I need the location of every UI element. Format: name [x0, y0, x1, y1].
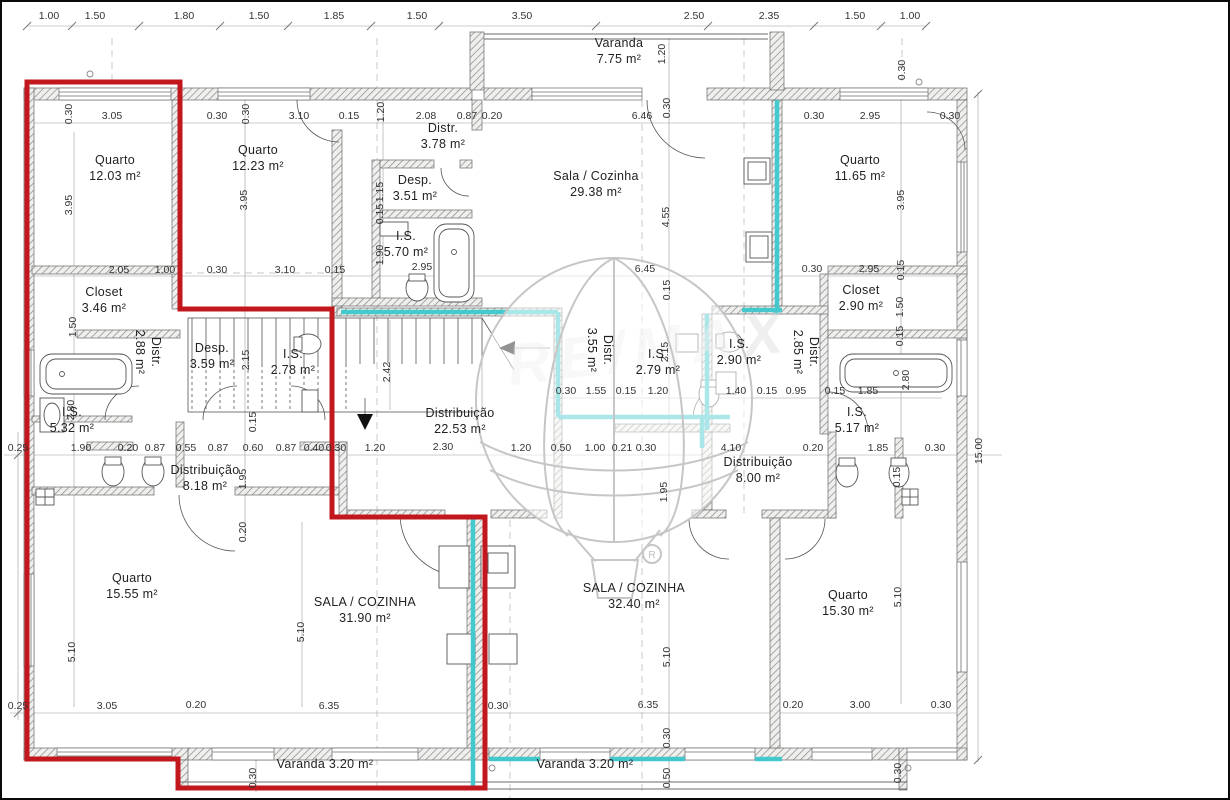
- dim-label: 0.20: [237, 522, 249, 543]
- dim-label: 0.20: [783, 699, 804, 711]
- dim-label: 1.00: [585, 442, 606, 454]
- dim-label: 0.20: [482, 110, 503, 122]
- dim-label: 6.45: [635, 263, 656, 275]
- room-label: I.S.5.17 m²: [835, 405, 879, 435]
- dim-label: 3.00: [850, 699, 871, 711]
- floor-plan-drawing: RE/MAX R 1.001.501.801.501.851.503.502.5…: [2, 2, 1230, 800]
- dim-label: 3.05: [102, 110, 123, 122]
- shower-drain: [902, 489, 918, 505]
- dim-label: 2.50: [684, 10, 705, 22]
- dim-label: 1.40: [726, 385, 747, 397]
- room-label: Distr.2.85 m²: [791, 330, 821, 374]
- dim-label: 0.15: [247, 412, 259, 433]
- dim-label: 0.30: [892, 763, 904, 784]
- dim-label: 2.15: [240, 350, 252, 371]
- dim-label: 2.05: [109, 264, 130, 276]
- dim-label: 6.35: [638, 699, 659, 711]
- watermark-registered-mark: R: [648, 550, 655, 561]
- dim-label: 3.50: [512, 10, 533, 22]
- dim-label: 0.50: [551, 442, 572, 454]
- dim-label: 0.55: [176, 442, 197, 454]
- dim-label: 3.10: [275, 264, 296, 276]
- room-label: Closet2.90 m²: [839, 283, 883, 313]
- dim-label: 1.20: [375, 102, 387, 123]
- dim-label: 0.15: [825, 385, 846, 397]
- dim-label: 1.20: [656, 44, 668, 65]
- dim-label: 0.15: [757, 385, 778, 397]
- dim-label: 0.30: [661, 728, 673, 749]
- dim-label: 0.30: [207, 110, 228, 122]
- dim-label: 2.35: [759, 10, 780, 22]
- dim-label: 0.15: [325, 264, 346, 276]
- dim-label: 4.10: [721, 442, 742, 454]
- dim-label: 1.85: [858, 385, 879, 397]
- dim-label: 2.42: [381, 362, 393, 383]
- dim-label: 1.00: [39, 10, 60, 22]
- dim-label: 1.20: [365, 442, 386, 454]
- dim-label: 0.60: [243, 442, 264, 454]
- bathtub: [434, 224, 474, 302]
- dim-label: 0.30: [326, 442, 347, 454]
- dim-label: 3.95: [63, 195, 75, 216]
- dim-label: 1.15: [374, 182, 386, 203]
- room-label: Varanda 3.20 m²: [277, 757, 374, 771]
- dim-label: 0.30: [488, 700, 509, 712]
- dim-label: 5.10: [892, 587, 904, 608]
- dim-label: 0.25: [8, 442, 29, 454]
- floor-plan-page: RE/MAX R 1.001.501.801.501.851.503.502.5…: [0, 0, 1230, 800]
- dim-label: 0.15: [374, 204, 386, 225]
- dim-label: 5.10: [295, 622, 307, 643]
- toilet: [102, 457, 124, 486]
- dim-label: 0.95: [786, 385, 807, 397]
- room-label: Sala / Cozinha29.38 m²: [553, 169, 639, 199]
- room-label: Quarto15.55 m²: [106, 571, 158, 601]
- dim-label: 0.30: [925, 442, 946, 454]
- dim-label: 0.30: [661, 98, 673, 119]
- room-label: Desp.3.51 m²: [393, 173, 437, 203]
- dim-label: 1.00: [155, 264, 176, 276]
- dim-label: 1.50: [407, 10, 428, 22]
- dim-label: 0.87: [276, 442, 297, 454]
- dim-label: 1.50: [67, 317, 79, 338]
- dim-label: 0.50: [661, 768, 673, 789]
- dim-label: 1.50: [845, 10, 866, 22]
- dim-label: 1.80: [174, 10, 195, 22]
- room-label: Desp.3.59 m²: [190, 341, 234, 371]
- stair-direction-arrow-down: [357, 414, 373, 430]
- dim-label: 1.50: [85, 10, 106, 22]
- dim-label: 0.30: [636, 442, 657, 454]
- dim-label: 15.00: [973, 438, 985, 464]
- room-label: Quarto12.03 m²: [89, 153, 141, 183]
- kitchen-unit: [744, 158, 772, 262]
- dim-label: 0.20: [118, 442, 139, 454]
- dim-label: 0.30: [556, 385, 577, 397]
- dim-label: 0.25: [8, 700, 29, 712]
- sink: [302, 390, 318, 412]
- room-label: Quarto11.65 m²: [835, 153, 886, 183]
- toilet: [836, 458, 858, 487]
- dim-label: 1.55: [586, 385, 607, 397]
- dim-label: 0.20: [803, 442, 824, 454]
- dim-label: 1.50: [894, 297, 906, 318]
- dim-label: 5.10: [661, 647, 673, 668]
- room-label: SALA / COZINHA31.90 m²: [314, 595, 417, 625]
- dim-label: 0.87: [208, 442, 229, 454]
- remax-balloon-watermark: RE/MAX R: [476, 258, 795, 598]
- dim-label: 0.15: [891, 467, 903, 488]
- dim-label: 0.15: [661, 280, 673, 301]
- stair-treads-hidden: [192, 364, 346, 412]
- dim-label: 0.30: [940, 110, 961, 122]
- shower-drain: [36, 489, 54, 505]
- dim-label: 3.95: [238, 190, 250, 211]
- room-label: Distr.3.78 m²: [421, 121, 465, 151]
- dim-label: 0.30: [802, 263, 823, 275]
- dim-label: 4.55: [660, 207, 672, 228]
- dim-label: 2.80: [900, 370, 912, 391]
- dim-label: 3.10: [289, 110, 310, 122]
- bidet: [142, 457, 164, 486]
- dim-label: 0.30: [207, 264, 228, 276]
- dim-label: 1.50: [249, 10, 270, 22]
- dim-label: 0.30: [931, 699, 952, 711]
- dim-label: 0.15: [616, 385, 637, 397]
- room-label: Varanda 3.20 m²: [537, 757, 634, 771]
- dim-label: 0.30: [247, 768, 259, 789]
- dim-label: 0.30: [804, 110, 825, 122]
- dim-label: 1.95: [658, 482, 670, 503]
- bathtub: [40, 354, 132, 394]
- room-label: Varanda7.75 m²: [595, 36, 643, 66]
- dim-label: 1.00: [900, 10, 921, 22]
- dim-label: 0.87: [145, 442, 166, 454]
- dim-label: 1.20: [511, 442, 532, 454]
- dim-label: 5.10: [66, 642, 78, 663]
- dim-label: 2.30: [433, 441, 454, 453]
- dim-label: 1.85: [324, 10, 345, 22]
- dim-label: 2.95: [860, 110, 881, 122]
- dim-label: 0.21: [612, 442, 633, 454]
- dim-label: 2.95: [859, 263, 880, 275]
- dim-label: 2.95: [412, 261, 433, 273]
- room-label: Closet3.46 m²: [82, 285, 126, 315]
- unit-outline-red: [27, 82, 485, 788]
- dim-label: 3.05: [97, 700, 118, 712]
- dim-label: 6.35: [319, 700, 340, 712]
- dim-label: 1.85: [868, 442, 889, 454]
- dim-label: 0.15: [339, 110, 360, 122]
- room-label: Quarto12.23 m²: [232, 143, 284, 173]
- dim-label: 0.15: [895, 260, 907, 281]
- dim-label: 0.20: [186, 699, 207, 711]
- dim-label: 1.90: [71, 442, 92, 454]
- room-label: Quarto15.30 m²: [822, 588, 874, 618]
- dim-label: 0.30: [63, 104, 75, 125]
- dim-label: 0.30: [896, 60, 908, 81]
- dim-label: 0.15: [894, 326, 906, 347]
- dim-label: 1.20: [648, 385, 669, 397]
- dim-label: 0.30: [240, 104, 252, 125]
- dim-label: 3.95: [895, 190, 907, 211]
- toilet: [406, 274, 428, 301]
- dim-label: 0.87: [457, 110, 478, 122]
- dim-label: 0.40: [304, 442, 325, 454]
- dim-label: 6.46: [632, 110, 653, 122]
